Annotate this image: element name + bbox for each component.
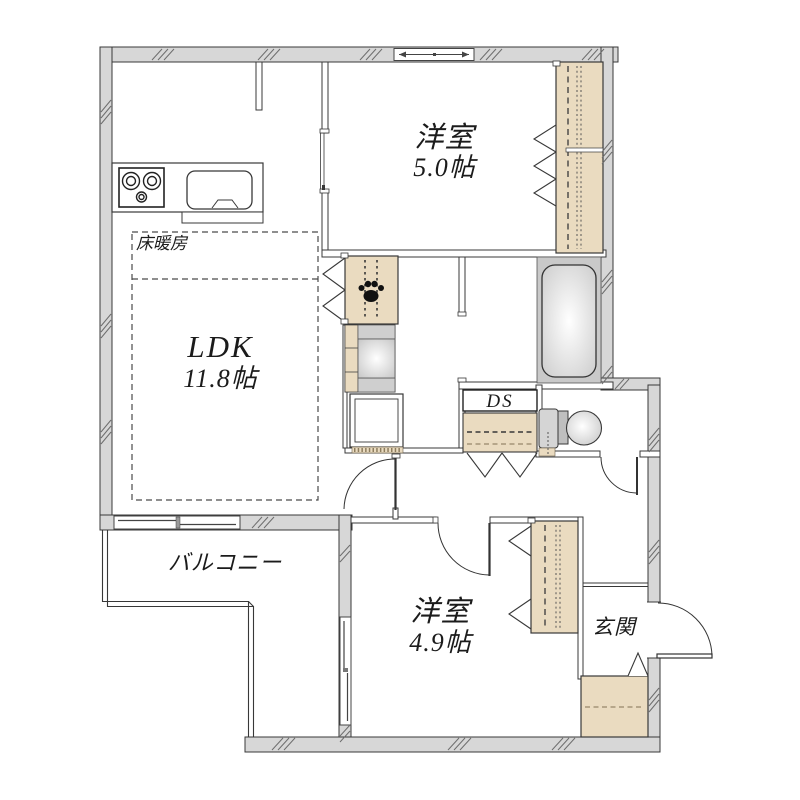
wall-entrance-west bbox=[578, 517, 583, 679]
wall-bedroom1-west-b bbox=[322, 190, 328, 257]
bedroom1-closet-box bbox=[556, 62, 603, 253]
wash-basin bbox=[358, 339, 395, 378]
kitchen-sink-icon bbox=[187, 171, 252, 209]
entry-door-arc bbox=[658, 603, 712, 656]
toilet-cistern bbox=[539, 409, 558, 448]
vanity-shelf-bottom bbox=[358, 378, 395, 392]
toilet-door-arc bbox=[601, 457, 637, 493]
vanity-shelf-top bbox=[358, 325, 395, 339]
bedroom1-label: 洋室 bbox=[362, 124, 527, 153]
door-latch bbox=[322, 185, 325, 190]
door-jamb bbox=[341, 319, 348, 324]
interior-doors bbox=[344, 454, 490, 576]
entrance-label: 玄関 bbox=[583, 617, 645, 638]
bedroom2-closet-box bbox=[531, 521, 578, 633]
washer-pan bbox=[350, 394, 403, 447]
washroom bbox=[345, 325, 403, 453]
linen-closet bbox=[463, 413, 537, 452]
bedroom1-size-label: 5.0帖 bbox=[362, 155, 527, 181]
bathroom bbox=[458, 257, 601, 383]
ldk-label: LDK bbox=[138, 331, 303, 362]
door-jamb bbox=[528, 518, 535, 523]
entry-door-leaf bbox=[657, 654, 712, 658]
floor-plan: 洋室 5.0帖 LDK 11.8帖 床暖房 バルコニー 洋室 4.9帖 玄関 D… bbox=[0, 0, 800, 800]
bedroom2-door-arc bbox=[438, 523, 489, 575]
toilet-icon bbox=[567, 411, 602, 445]
door-jamb bbox=[392, 454, 400, 458]
floor-plan-drawing bbox=[0, 0, 800, 800]
bedroom1-closet bbox=[534, 61, 603, 253]
kitchen-counter-front bbox=[182, 212, 263, 223]
bedroom1-sliding-door bbox=[320, 129, 329, 193]
vanity-cabinet bbox=[345, 325, 358, 392]
ldk-door-arc bbox=[344, 459, 395, 509]
bedroom2-label: 洋室 bbox=[358, 598, 523, 627]
pet-closet-box bbox=[345, 256, 398, 324]
door-jamb bbox=[341, 253, 348, 258]
door-jamb bbox=[553, 61, 560, 66]
duct-space-label: DS bbox=[463, 392, 537, 411]
wall-washroom-east-a bbox=[459, 257, 465, 315]
entrance-step-line bbox=[583, 583, 648, 587]
closet-shelf bbox=[566, 148, 603, 152]
entry-door-gap bbox=[647, 602, 661, 658]
sliding-door-panel bbox=[321, 133, 325, 190]
pet-closet-folding-doors bbox=[323, 258, 345, 322]
ldk-size-label: 11.8帖 bbox=[138, 366, 303, 392]
bedroom2-size-label: 4.9帖 bbox=[358, 630, 523, 656]
balcony-label: バルコニー bbox=[145, 552, 305, 574]
door-jamb bbox=[433, 517, 438, 523]
pet-closet bbox=[323, 253, 398, 324]
bedroom1-closet-folding-doors bbox=[534, 125, 556, 206]
bath-door-jamb bbox=[458, 378, 466, 382]
floor-heating-label: 床暖房 bbox=[136, 235, 187, 252]
door-jamb bbox=[320, 129, 329, 133]
wall-kitchen-stub bbox=[256, 62, 262, 110]
entrance-step-marker bbox=[628, 653, 648, 676]
bath-door-jamb bbox=[458, 312, 466, 316]
window-ldk-mullion bbox=[176, 517, 180, 528]
linen-double-doors bbox=[467, 453, 537, 477]
bathtub-icon bbox=[542, 265, 596, 377]
wall-top bbox=[100, 47, 618, 62]
toilet-cabinet bbox=[539, 448, 555, 456]
wall-toilet-south-b bbox=[640, 451, 660, 457]
kitchen-counter bbox=[112, 163, 263, 223]
wall-left bbox=[100, 47, 112, 530]
window-bedroom2-mullion bbox=[343, 668, 348, 672]
wall-bedroom1-west-a bbox=[322, 62, 328, 133]
